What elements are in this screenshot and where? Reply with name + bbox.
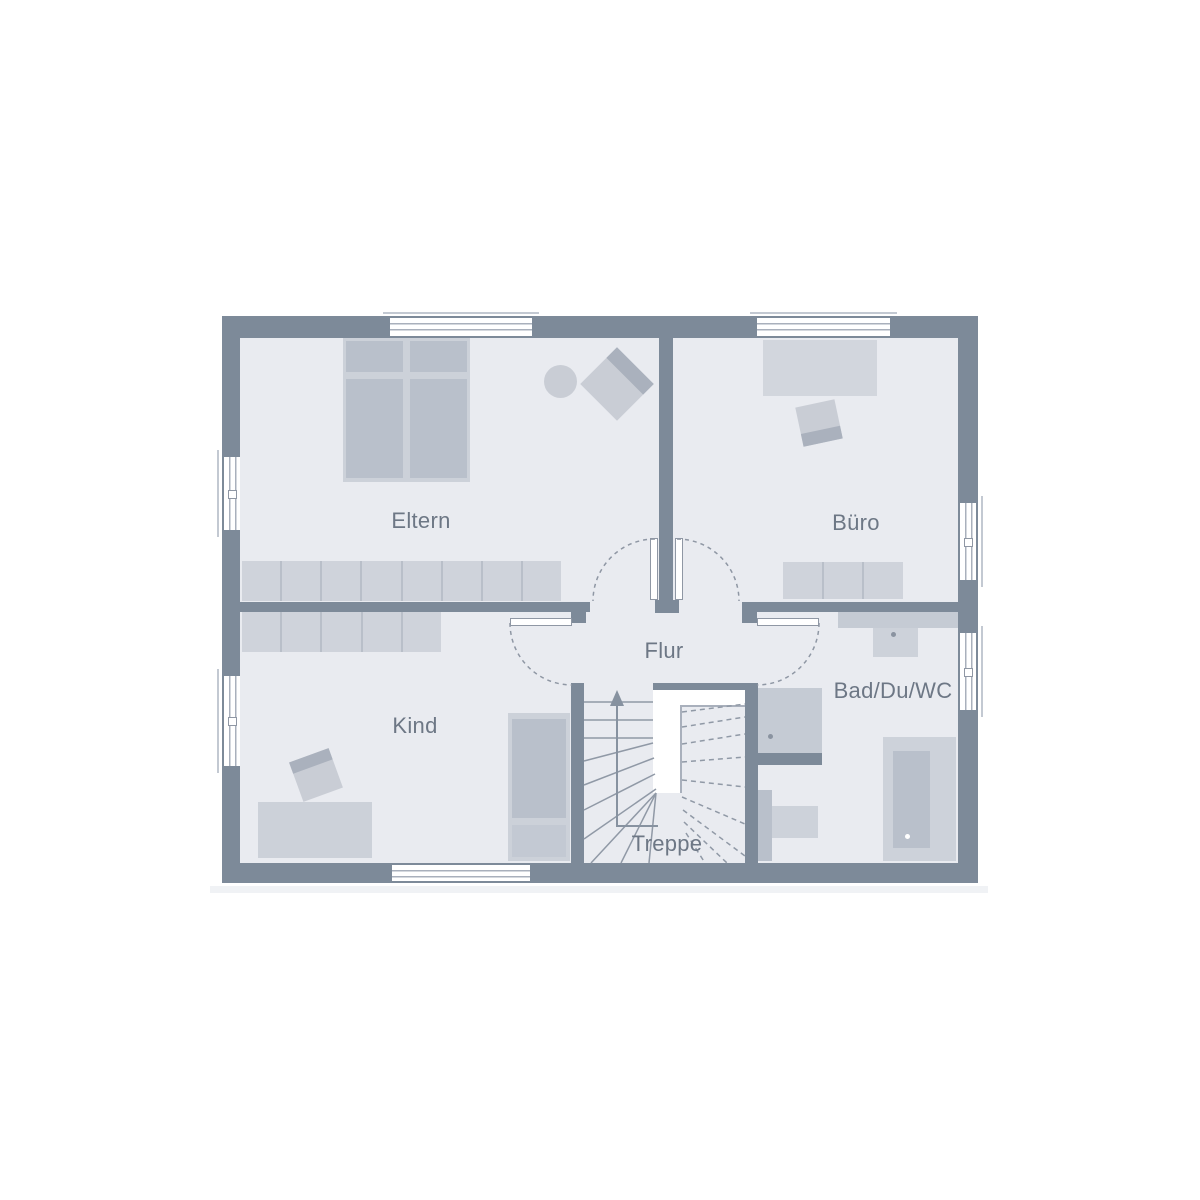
shower [758, 688, 822, 753]
room-label-eltern: Eltern [391, 508, 450, 534]
wc-cistern [758, 790, 772, 861]
kind-bed-foot [512, 825, 566, 857]
wall-hall-right-hinge [742, 612, 757, 623]
washbasin-drain [891, 632, 896, 637]
room-label-flur: Flur [644, 638, 683, 664]
kind-bed-mattress [512, 719, 566, 818]
wall-outer-bottom [222, 863, 978, 883]
buero-sideboard [783, 562, 903, 599]
door-leaf-buero [675, 538, 683, 600]
wall-stair-top [653, 683, 745, 690]
winder-boundary-vertical [680, 705, 682, 793]
room-label-buero: Büro [832, 510, 880, 536]
window-eltern-left [224, 457, 240, 530]
bed-mattress-right [410, 379, 467, 478]
wall-stair-right [745, 683, 758, 863]
sill-left-lower [217, 669, 219, 773]
door-leaf-kind [510, 618, 572, 626]
bath-counter [838, 612, 958, 628]
wall-hall-right [742, 602, 958, 612]
eltern-wardrobe [242, 561, 561, 601]
wall-center-stub [655, 600, 679, 613]
ground-line [210, 886, 988, 893]
sill-left-upper [217, 450, 219, 537]
room-label-bad: Bad/Du/WC [834, 678, 953, 704]
wall-outer-right [958, 316, 978, 883]
sill-top-left [383, 312, 539, 314]
sill-right-upper [981, 496, 983, 587]
wall-stair-left [571, 683, 584, 863]
kind-wardrobe [242, 612, 441, 652]
room-label-treppe: Treppe [632, 831, 703, 857]
wall-hall-left-hinge [571, 612, 586, 623]
winder-boundary-horizontal [680, 705, 745, 707]
buero-chair [795, 399, 842, 446]
window-eltern-top [390, 318, 532, 336]
buero-desk [763, 340, 877, 396]
bathtub-inner [893, 751, 930, 848]
window-bad-right [960, 633, 976, 710]
window-kind-bottom [392, 865, 530, 881]
door-leaf-bad [757, 618, 819, 626]
window-mullion [228, 717, 237, 726]
window-kind-left [224, 676, 240, 766]
window-buero-right [960, 503, 976, 580]
bed-pillow-right [410, 341, 467, 372]
window-mullion [228, 490, 237, 499]
wall-shower-stub [758, 753, 822, 765]
window-buero-top [757, 318, 890, 336]
sill-right-lower [981, 626, 983, 717]
bathtub-drain [905, 834, 910, 839]
wall-eltern-buero [659, 338, 673, 600]
wall-hall-left [240, 602, 590, 612]
wall-outer-left [222, 316, 240, 883]
room-label-kind: Kind [392, 713, 437, 739]
shower-drain [768, 734, 773, 739]
floor-plan: Eltern Büro Kind Flur Bad/Du/WC Treppe [0, 0, 1200, 1200]
stairwell-opening-side [653, 690, 680, 793]
wc-toilet [772, 806, 818, 838]
bed-mattress-left [346, 379, 403, 478]
window-mullion [964, 538, 973, 547]
door-leaf-eltern [650, 538, 658, 600]
sill-top-right [750, 312, 897, 314]
window-mullion [964, 668, 973, 677]
bed-pillow-left [346, 341, 403, 372]
eltern-stool [544, 365, 577, 398]
kind-desk [258, 802, 372, 858]
